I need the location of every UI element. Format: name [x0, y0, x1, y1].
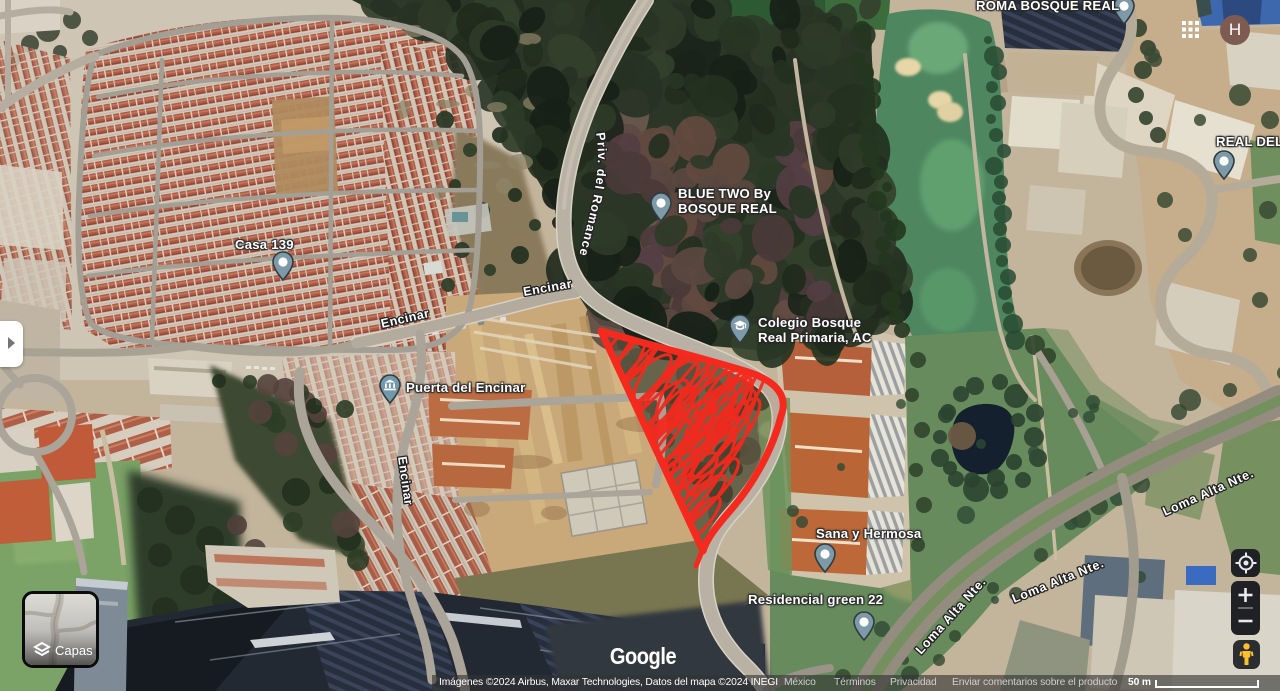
- svg-text:Capas: Capas: [55, 643, 93, 658]
